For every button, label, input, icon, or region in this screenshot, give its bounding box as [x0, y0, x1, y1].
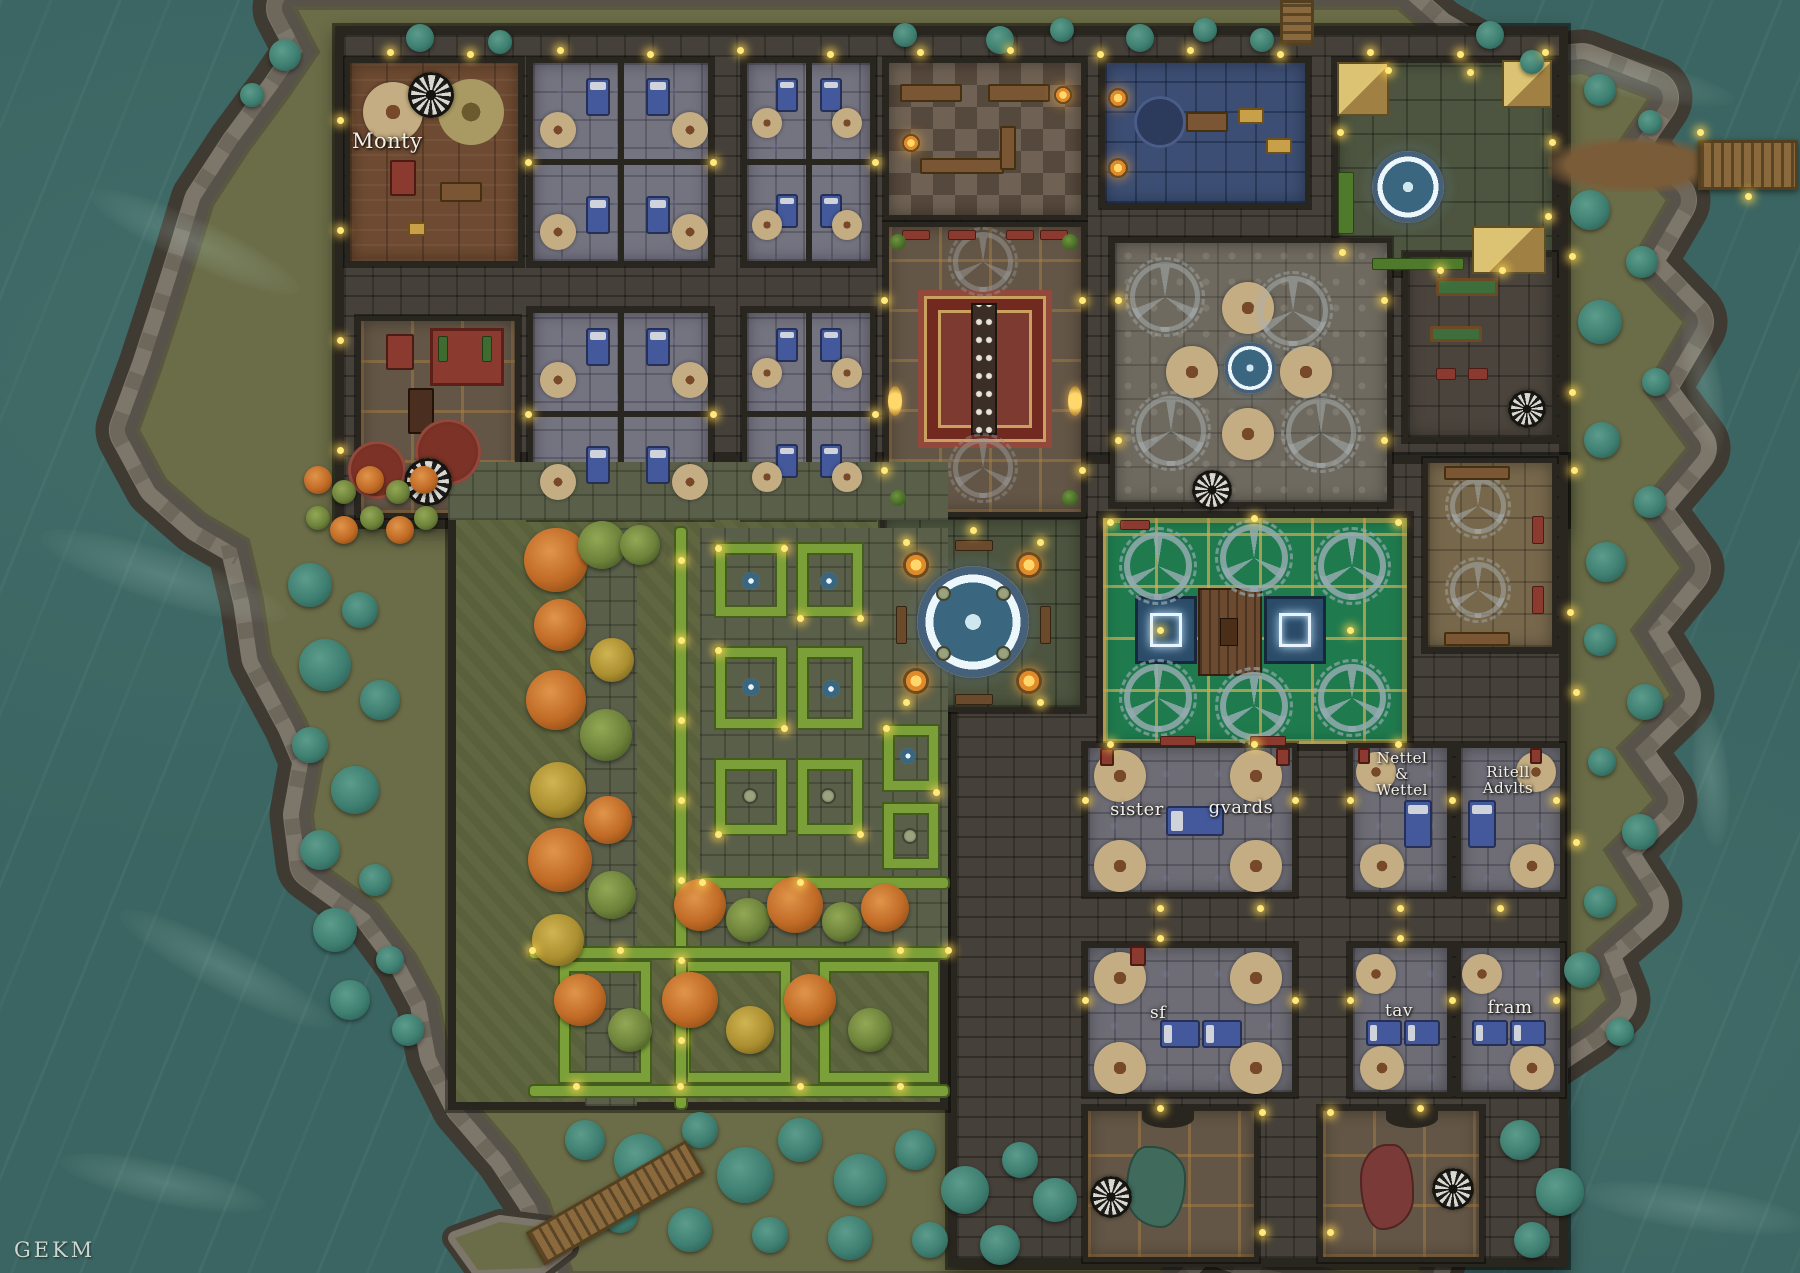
light-dot [1449, 997, 1456, 1004]
tree [1193, 18, 1217, 42]
light-dot [1571, 467, 1578, 474]
furniture-dirt [1548, 138, 1718, 192]
light-dot [970, 527, 977, 534]
furniture-planter [902, 828, 918, 844]
furniture-gear-p [1136, 396, 1206, 466]
furniture-rug-tan [1094, 840, 1146, 892]
light-dot [1251, 741, 1258, 748]
light-dot [1499, 267, 1506, 274]
light-dot [1569, 253, 1576, 260]
light-dot [781, 725, 788, 732]
light-dot [1542, 49, 1549, 56]
furniture-bed [586, 328, 610, 366]
light-dot [857, 615, 864, 622]
tree [299, 639, 351, 691]
tree [306, 506, 330, 530]
furniture-arch [1386, 1108, 1438, 1128]
hedge-row [530, 1086, 948, 1096]
tree [1536, 1168, 1584, 1216]
light-dot [1097, 51, 1104, 58]
furniture-rug-tan [672, 112, 708, 148]
furniture-bed-h [1404, 1020, 1440, 1046]
light-dot [1187, 47, 1194, 54]
light-dot [1347, 627, 1354, 634]
furniture-hedge-bed [1372, 258, 1464, 270]
furniture-pool [1264, 596, 1326, 664]
furniture-bed [646, 196, 670, 234]
furniture-gear-s [1124, 664, 1192, 732]
tree [1584, 886, 1616, 918]
tree [893, 23, 917, 47]
furniture-bed [646, 328, 670, 366]
light-dot [857, 831, 864, 838]
furniture-plant [890, 234, 906, 250]
tree [331, 766, 379, 814]
tree [359, 864, 391, 896]
tree [342, 592, 378, 628]
furniture-bed-v [1468, 800, 1496, 848]
furniture-gear-s [1220, 524, 1288, 592]
light-dot [1115, 297, 1122, 304]
furniture-brazier [1108, 158, 1128, 178]
furniture-plant [1062, 234, 1078, 250]
furniture-table-r [1530, 748, 1542, 764]
tree [1033, 1178, 1077, 1222]
light-dot [1157, 935, 1164, 942]
tree [584, 796, 632, 844]
furniture-gear-s [1318, 664, 1386, 732]
furniture-rug-tan [752, 210, 782, 240]
tree [895, 1130, 935, 1170]
furniture-bed-h [1510, 1020, 1546, 1046]
tree [406, 24, 434, 52]
light-dot [1157, 1105, 1164, 1112]
light-dot [781, 545, 788, 552]
label-tav: tav [1368, 1002, 1430, 1020]
furniture-rug-tan [1510, 1046, 1554, 1090]
furniture-bench-r [1160, 736, 1196, 746]
furniture-planter [742, 788, 758, 804]
light-dot [715, 545, 722, 552]
label-ritell-line2: Advlts [1456, 780, 1560, 796]
light-dot [1007, 47, 1014, 54]
light-dot [1347, 997, 1354, 1004]
furniture-spiral [1090, 1176, 1132, 1218]
light-dot [1107, 519, 1114, 526]
tree [386, 480, 410, 504]
furniture-table-b [988, 84, 1050, 102]
tree [1584, 624, 1616, 656]
furniture-bed-h [1160, 1020, 1200, 1048]
tree [620, 525, 660, 565]
tree [726, 898, 770, 942]
light-dot [710, 159, 717, 166]
furniture-gear-p [1286, 398, 1356, 468]
light-dot [525, 159, 532, 166]
tree [822, 902, 862, 942]
tree [1500, 1120, 1540, 1160]
light-dot [1082, 797, 1089, 804]
tree [534, 599, 586, 651]
light-dot [678, 557, 685, 564]
light-dot [1367, 49, 1374, 56]
furniture-bench-r [1532, 586, 1544, 614]
tree [532, 914, 584, 966]
label-ritell-line1: Ritell [1456, 764, 1560, 780]
tree [590, 638, 634, 682]
furniture-rug-tan [1094, 1042, 1146, 1094]
tree [304, 466, 332, 494]
light-dot [337, 337, 344, 344]
tree [356, 466, 384, 494]
furniture-bench-r [1006, 230, 1034, 240]
light-dot [573, 1083, 580, 1090]
furniture-bed [776, 78, 798, 112]
tree [1634, 486, 1666, 518]
furniture-brazier [1016, 552, 1042, 578]
furniture-rug-tan [540, 464, 576, 500]
light-dot [1449, 797, 1456, 804]
label-nettel-wettel: Nettel & Wettel [1356, 750, 1448, 799]
tree [861, 884, 909, 932]
furniture-arch [1142, 1108, 1194, 1128]
tree [1626, 246, 1658, 278]
tree [330, 516, 358, 544]
furniture-spiral [1192, 470, 1232, 510]
light-dot [1115, 437, 1122, 444]
furniture-gear-s [1124, 532, 1192, 600]
light-dot [881, 297, 888, 304]
tree [726, 1006, 774, 1054]
furniture-bench-b [955, 540, 993, 551]
light-dot [1347, 797, 1354, 804]
furniture-table-g [1430, 326, 1482, 342]
light-dot [1417, 1105, 1424, 1112]
label-guards: gvards [1196, 798, 1286, 817]
furniture-rug-tan [1230, 750, 1282, 802]
furniture-rug-tan [1360, 844, 1404, 888]
tree [414, 506, 438, 530]
furniture-lamp [888, 386, 902, 416]
furniture-fount-sm [822, 680, 840, 698]
light-dot [677, 1083, 684, 1090]
light-dot [678, 717, 685, 724]
furniture-plant [890, 490, 906, 506]
furniture-bed-h [1366, 1020, 1402, 1046]
room-office [1100, 58, 1310, 208]
light-dot [1573, 839, 1580, 846]
furniture-bed [586, 446, 610, 484]
light-dot [1037, 699, 1044, 706]
tree [1002, 1142, 1038, 1178]
light-dot [467, 51, 474, 58]
furniture-rug-tan [1360, 1046, 1404, 1090]
furniture-gear-p [1258, 276, 1328, 346]
label-fram: fram [1468, 998, 1552, 1017]
light-dot [881, 467, 888, 474]
furniture-rug-tan [832, 210, 862, 240]
furniture-canopy [1337, 62, 1389, 116]
furniture-hedge-bed [1338, 172, 1354, 234]
hedge-row [700, 878, 948, 888]
furniture-rug-tan [832, 358, 862, 388]
tree [554, 974, 606, 1026]
label-nettel-line1: Nettel [1356, 750, 1448, 766]
furniture-table-r [1276, 748, 1290, 766]
label-nettel-line3: Wettel [1356, 782, 1448, 798]
tree [1638, 110, 1662, 134]
tree [332, 480, 356, 504]
light-dot [715, 647, 722, 654]
light-dot [617, 947, 624, 954]
furniture-rug-tan [1462, 954, 1502, 994]
furniture-bed [646, 446, 670, 484]
furniture-rug-tan [1510, 844, 1554, 888]
light-dot [1259, 1229, 1266, 1236]
light-dot [797, 615, 804, 622]
light-dot [1107, 741, 1114, 748]
furniture-brazier [1054, 86, 1072, 104]
furniture-bench-r [1120, 520, 1150, 530]
tree [668, 1208, 712, 1252]
light-dot [529, 947, 536, 954]
light-dot [678, 797, 685, 804]
light-dot [1259, 1109, 1266, 1116]
light-dot [1697, 129, 1704, 136]
furniture-bed [776, 328, 798, 362]
furniture-fount-sm [900, 748, 916, 764]
light-dot [1569, 389, 1576, 396]
label-sf: sf [1128, 1004, 1188, 1022]
furniture-rug-tan [1230, 840, 1282, 892]
furniture-table-b [1186, 112, 1228, 132]
furniture-planter [996, 586, 1011, 601]
light-dot [525, 411, 532, 418]
tree [565, 1120, 605, 1160]
furniture-gear-p [1450, 562, 1506, 618]
tree [608, 1008, 652, 1052]
light-dot [1549, 139, 1556, 146]
light-dot [883, 725, 890, 732]
furniture-rug-tan [672, 362, 708, 398]
label-nettel-line2: & [1356, 766, 1448, 782]
light-dot [1467, 69, 1474, 76]
tree [1584, 422, 1620, 458]
light-dot [827, 51, 834, 58]
furniture-bed-h [1472, 1020, 1508, 1046]
tree [848, 1008, 892, 1052]
furniture-brazier [902, 134, 920, 152]
tree [767, 877, 823, 933]
furniture-table-g [1436, 278, 1498, 296]
furniture-rug-red-t [1360, 1144, 1414, 1230]
light-dot [678, 637, 685, 644]
light-dot [737, 47, 744, 54]
furniture-rug-tan [1280, 346, 1332, 398]
furniture-fountain [1372, 151, 1444, 223]
furniture-plant [1062, 490, 1078, 506]
light-dot [1553, 797, 1560, 804]
tree [1564, 952, 1600, 988]
light-dot [1573, 689, 1580, 696]
light-dot [387, 49, 394, 56]
tree [240, 83, 264, 107]
tree [392, 1014, 424, 1046]
light-dot [903, 539, 910, 546]
furniture-rug-tan [672, 214, 708, 250]
furniture-bed [646, 78, 670, 116]
furniture-table-r [390, 160, 416, 196]
tree [580, 709, 632, 761]
watermark-gekm: GEKM [14, 1238, 95, 1262]
furniture-bed [820, 78, 842, 112]
tree [313, 908, 357, 952]
light-dot [797, 1083, 804, 1090]
furniture-bench-b [1040, 606, 1051, 644]
light-dot [1385, 67, 1392, 74]
furniture-bench-r [902, 230, 930, 240]
tree [488, 30, 512, 54]
tree [1622, 814, 1658, 850]
furniture-gear [953, 438, 1013, 498]
light-dot [1397, 905, 1404, 912]
tree [1627, 684, 1663, 720]
furniture-fountain-lg [917, 566, 1029, 678]
furniture-fountain [1224, 342, 1276, 394]
tree [360, 680, 400, 720]
tree [1126, 24, 1154, 52]
light-dot [1292, 997, 1299, 1004]
light-dot [1395, 741, 1402, 748]
light-dot [557, 47, 564, 54]
furniture-rug-tan [540, 214, 576, 250]
furniture-rug-tan [1166, 346, 1218, 398]
furniture-rug-tan [1222, 408, 1274, 460]
light-dot [1157, 905, 1164, 912]
furniture-planter [996, 646, 1011, 661]
furniture-rug-tan [752, 462, 782, 492]
light-dot [1457, 51, 1464, 58]
light-dot [337, 117, 344, 124]
light-dot [1553, 997, 1560, 1004]
furniture-spiral [408, 72, 454, 118]
light-dot [337, 227, 344, 234]
light-dot [1037, 539, 1044, 546]
furniture-bed [820, 328, 842, 362]
furniture-bed-h [1202, 1020, 1242, 1048]
dock-pier-v [1280, 0, 1314, 46]
map-canvas: Monty sister gvards Nettel & Wettel Rite… [0, 0, 1800, 1273]
furniture-table-r [1100, 748, 1114, 766]
tree [526, 670, 586, 730]
furniture-rug-tan [540, 112, 576, 148]
label-monty: Monty [352, 130, 472, 153]
furniture-bench-g [482, 336, 492, 362]
light-dot [1381, 437, 1388, 444]
furniture-rug-tan [752, 108, 782, 138]
light-dot [1257, 905, 1264, 912]
furniture-table-b [1444, 632, 1510, 646]
furniture-rug-tan [752, 358, 782, 388]
tree [828, 1216, 872, 1260]
tree [530, 762, 586, 818]
label-ritell-adults: Ritell Advlts [1456, 764, 1560, 796]
tree [1476, 21, 1504, 49]
tree [674, 879, 726, 931]
furniture-table-r [386, 334, 414, 370]
tree [784, 974, 836, 1026]
furniture-planter [936, 646, 951, 661]
tree [1514, 1222, 1550, 1258]
tree [662, 972, 718, 1028]
light-dot [337, 447, 344, 454]
light-dot [1337, 129, 1344, 136]
tree [269, 39, 301, 71]
light-dot [1395, 519, 1402, 526]
tree [410, 466, 438, 494]
hedge-row [530, 948, 948, 958]
light-dot [1079, 297, 1086, 304]
furniture-bed-v [1404, 800, 1432, 848]
dock-pier [1698, 140, 1798, 190]
light-dot [1567, 609, 1574, 616]
light-dot [797, 879, 804, 886]
tree [752, 1217, 788, 1253]
furniture-lamp [1068, 386, 1082, 416]
furniture-fount-sm [820, 572, 838, 590]
tree [941, 1166, 989, 1214]
tree [778, 1118, 822, 1162]
furniture-bench-r [948, 230, 976, 240]
furniture-brazier [1016, 668, 1042, 694]
light-dot [715, 831, 722, 838]
light-dot [1381, 297, 1388, 304]
furniture-bench-r [1532, 516, 1544, 544]
light-dot [1545, 213, 1552, 220]
light-dot [872, 159, 879, 166]
furniture-table-b [920, 158, 1004, 174]
furniture-bench-b [896, 606, 907, 644]
tree [1586, 542, 1626, 582]
tree [300, 830, 340, 870]
furniture-gear [953, 232, 1013, 292]
light-dot [678, 1037, 685, 1044]
light-dot [1292, 797, 1299, 804]
light-dot [945, 947, 952, 954]
furniture-gear-p [1450, 478, 1506, 534]
furniture-planter [936, 586, 951, 601]
tree [1050, 18, 1074, 42]
furniture-bed [586, 196, 610, 234]
tree [578, 521, 626, 569]
furniture-bench-g [438, 336, 448, 362]
light-dot [1745, 193, 1752, 200]
light-dot [1497, 905, 1504, 912]
furniture-plate-table [971, 303, 997, 435]
tree [360, 506, 384, 530]
furniture-table-b [1000, 126, 1016, 170]
furniture-spiral [1432, 1168, 1474, 1210]
furniture-brazier [903, 668, 929, 694]
light-dot [1277, 51, 1284, 58]
furniture-bed [586, 78, 610, 116]
light-dot [933, 789, 940, 796]
furniture-brazier [1108, 88, 1128, 108]
tree [717, 1147, 773, 1203]
light-dot [1339, 249, 1346, 256]
furniture-table-r [1130, 946, 1146, 966]
furniture-rug-tan [832, 462, 862, 492]
